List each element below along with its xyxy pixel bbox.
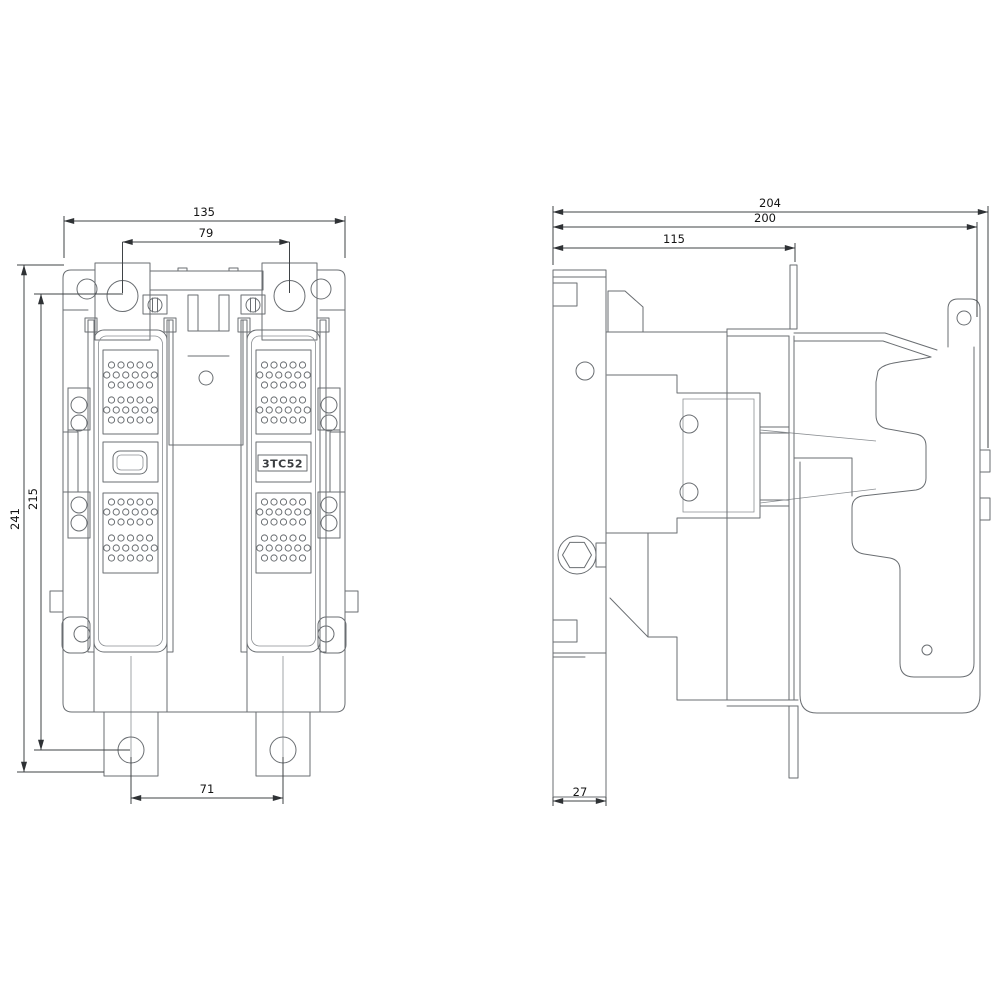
arc-chute-right: 3TC52 (238, 318, 329, 774)
arc-chute-left (85, 318, 176, 774)
dim-label-135: 135 (193, 205, 215, 219)
vent-panel-upper-right (256, 350, 311, 434)
vent-panel-upper-left (103, 350, 158, 434)
dim-body-depth: 200 (553, 211, 977, 317)
coil-terminal-screw-right (241, 295, 265, 314)
side-tabs-right (318, 388, 358, 653)
coil-window (169, 295, 243, 445)
contact-block (607, 375, 876, 533)
mounting-rail (553, 270, 606, 797)
dim-label-71: 71 (200, 782, 215, 796)
rear-tab-upper (980, 450, 990, 472)
rear-housing (794, 333, 990, 713)
mounting-bracket (852, 299, 980, 677)
front-post (790, 265, 797, 329)
coil-terminal-screw-left (143, 295, 167, 314)
foot-left (50, 591, 63, 612)
latch-button (113, 451, 147, 474)
dim-front-section-depth: 115 (553, 232, 795, 262)
product-label: 3TC52 (262, 458, 303, 471)
bracket-hole-top (957, 311, 971, 325)
dim-top-hole-spacing: 79 (123, 226, 290, 293)
dim-bottom-hole-spacing: 71 (131, 757, 283, 804)
foot-right (345, 591, 358, 612)
rear-tab-lower (980, 498, 990, 520)
vent-holes-left-module (104, 362, 158, 561)
dim-label-27: 27 (573, 785, 588, 799)
dim-label-204: 204 (759, 196, 781, 210)
wing-hole-left (77, 279, 97, 299)
contactor-dimension-drawing: 3TC52 (0, 0, 1000, 1000)
dim-label-215: 215 (26, 488, 40, 510)
lower-bar (789, 706, 798, 778)
side-tabs-left (50, 388, 90, 653)
technical-drawing-page: 3TC52 (0, 0, 1000, 1000)
dim-label-79: 79 (199, 226, 214, 240)
top-bump (608, 291, 643, 332)
dim-rail-depth: 27 (553, 785, 606, 806)
jumper-straps (760, 430, 876, 503)
center-hole (199, 371, 213, 385)
hex-bolt (558, 536, 606, 574)
wing-hole-right (311, 279, 331, 299)
side-view: 204 200 115 27 (553, 196, 990, 806)
dim-label-115: 115 (663, 232, 685, 246)
dim-label-200: 200 (754, 211, 776, 225)
rail-hole (576, 362, 594, 380)
top-strip (150, 271, 263, 290)
dim-label-241: 241 (8, 508, 22, 530)
housing-outline (63, 268, 345, 712)
bracket-hole-bottom (922, 645, 932, 655)
front-view: 3TC52 (8, 205, 358, 804)
body-block (607, 329, 798, 778)
mid-frame-left (103, 442, 158, 482)
dim-overall-depth: 204 (553, 196, 988, 448)
upper-arm (606, 265, 797, 336)
